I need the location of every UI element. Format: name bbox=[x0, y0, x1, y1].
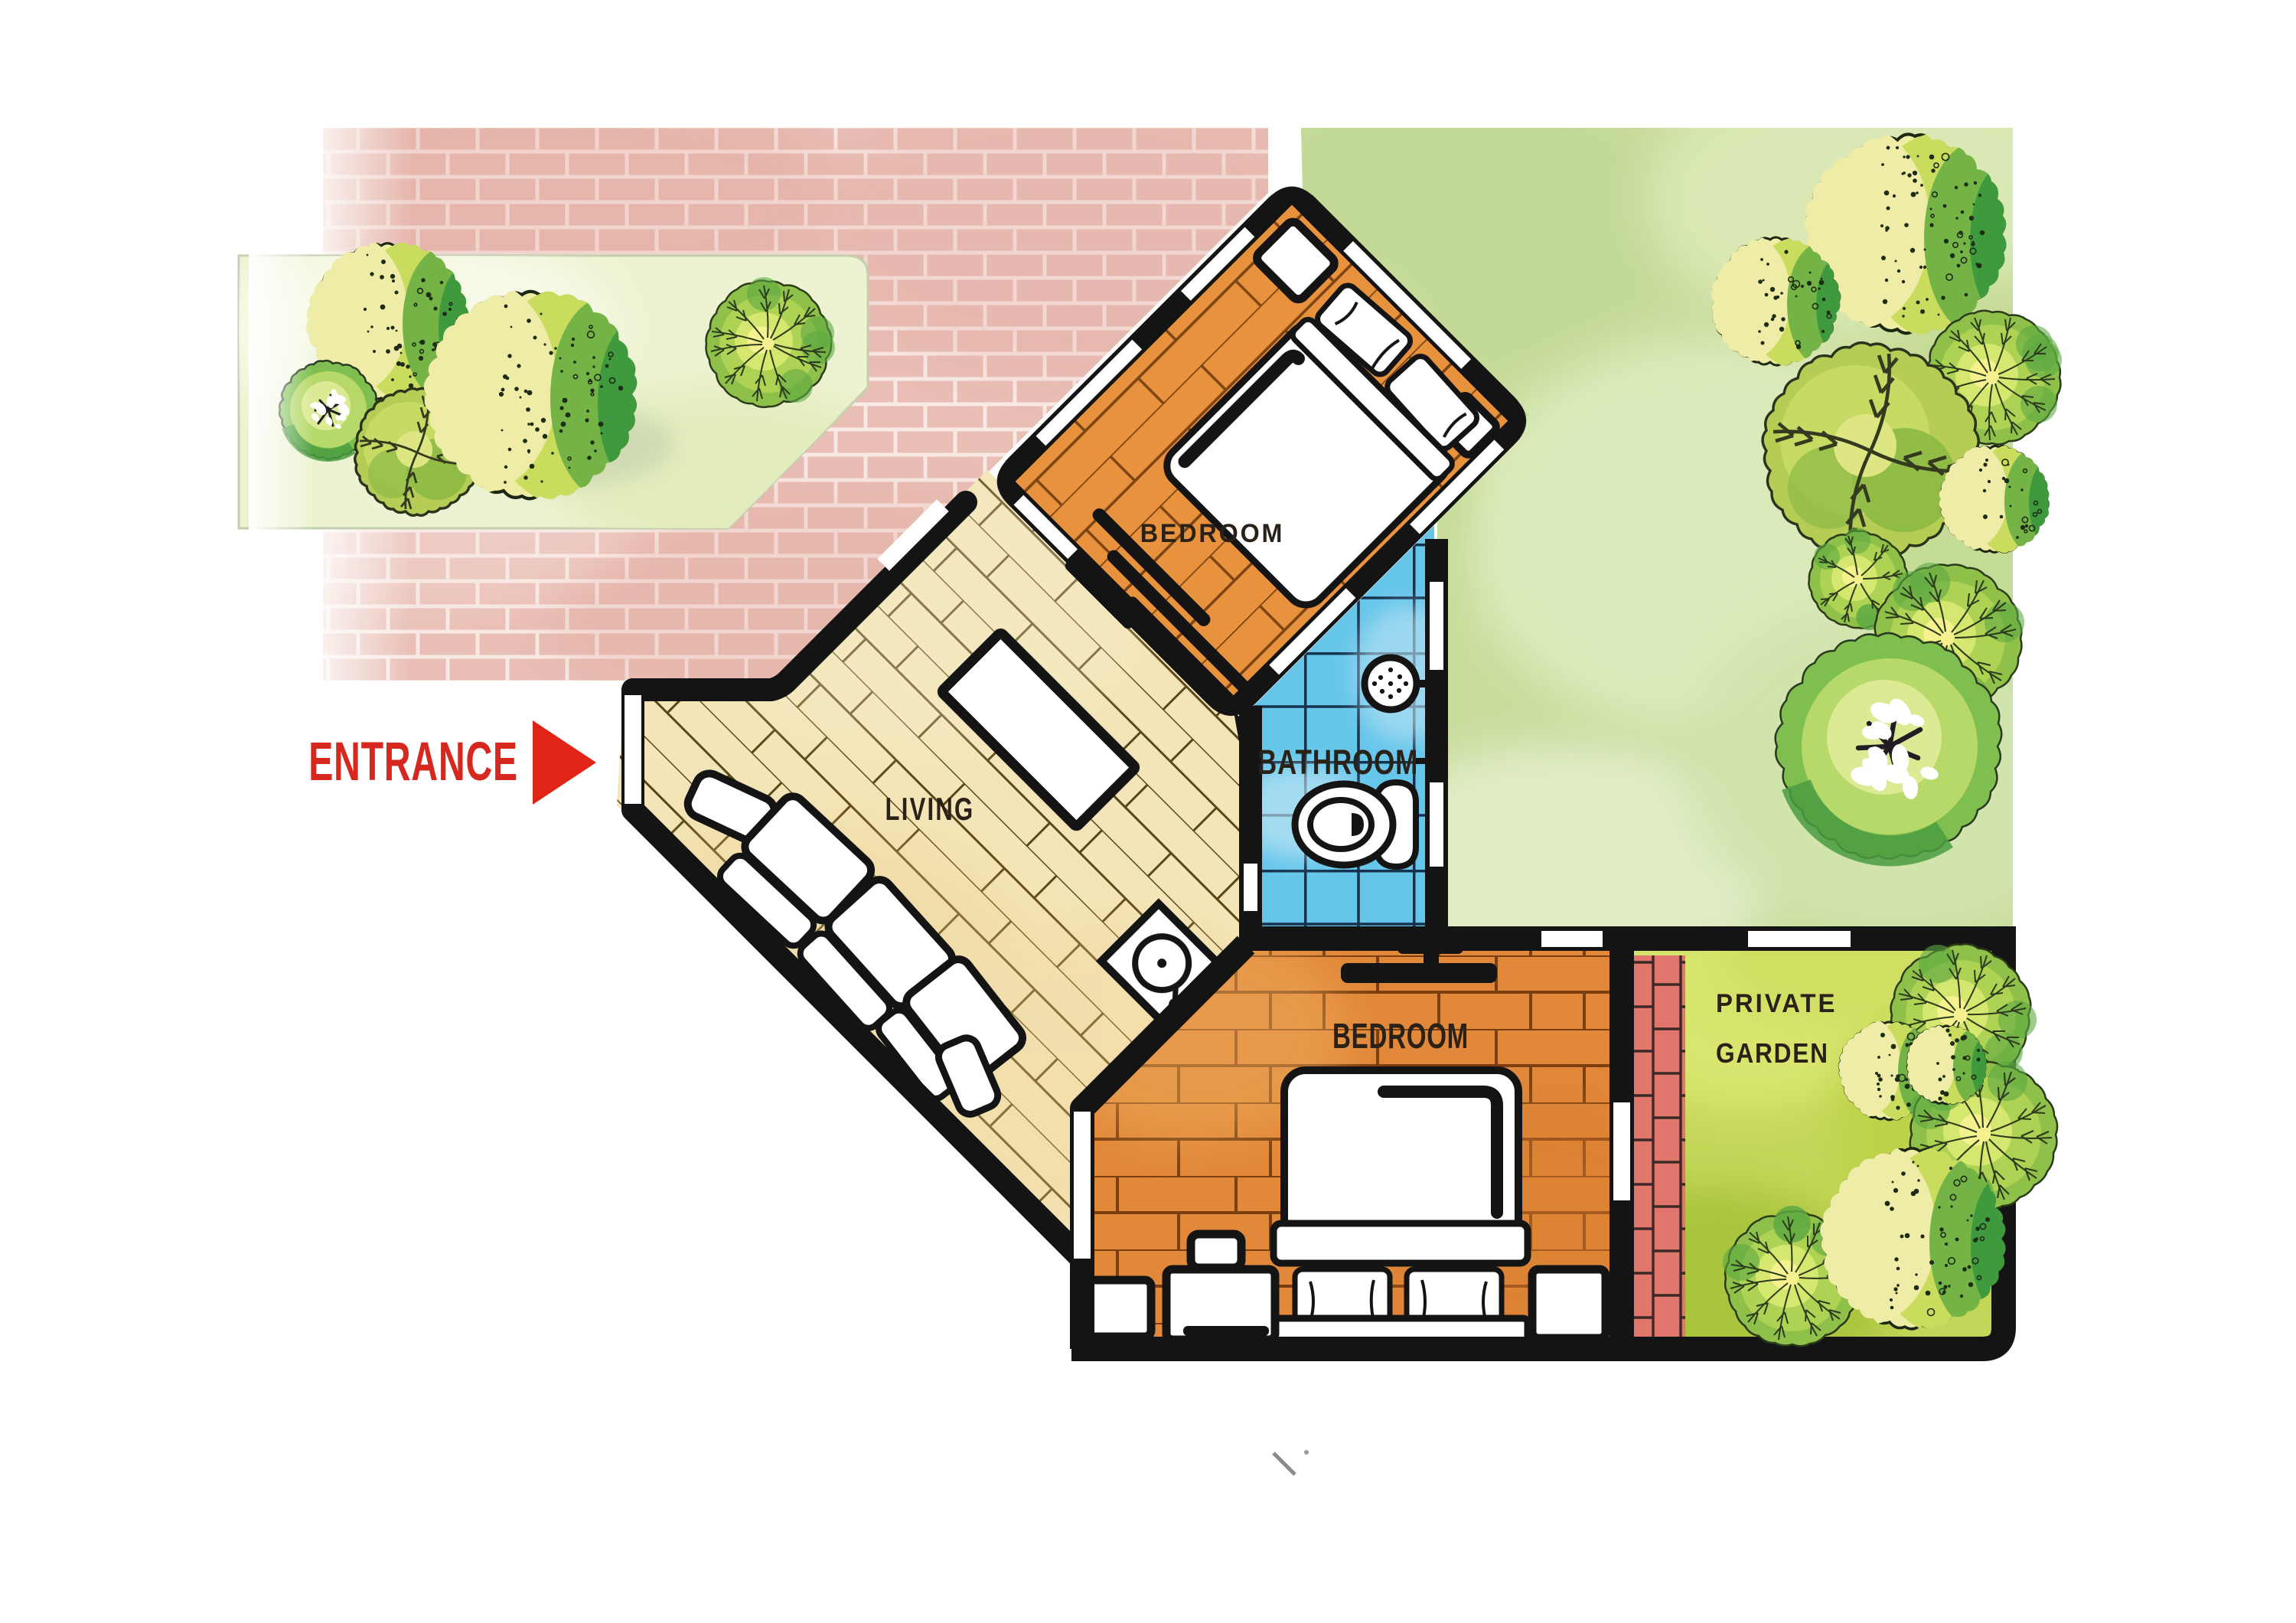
svg-text:BEDROOM: BEDROOM bbox=[1332, 1017, 1469, 1056]
svg-text:PRIVATE: PRIVATE bbox=[1716, 990, 1837, 1019]
svg-text:BATHROOM: BATHROOM bbox=[1257, 743, 1418, 782]
svg-text:ENTRANCE: ENTRANCE bbox=[308, 731, 518, 792]
svg-text:LIVING: LIVING bbox=[885, 791, 975, 827]
svg-text:GARDEN: GARDEN bbox=[1716, 1038, 1829, 1069]
svg-text:BEDROOM: BEDROOM bbox=[1140, 519, 1285, 548]
